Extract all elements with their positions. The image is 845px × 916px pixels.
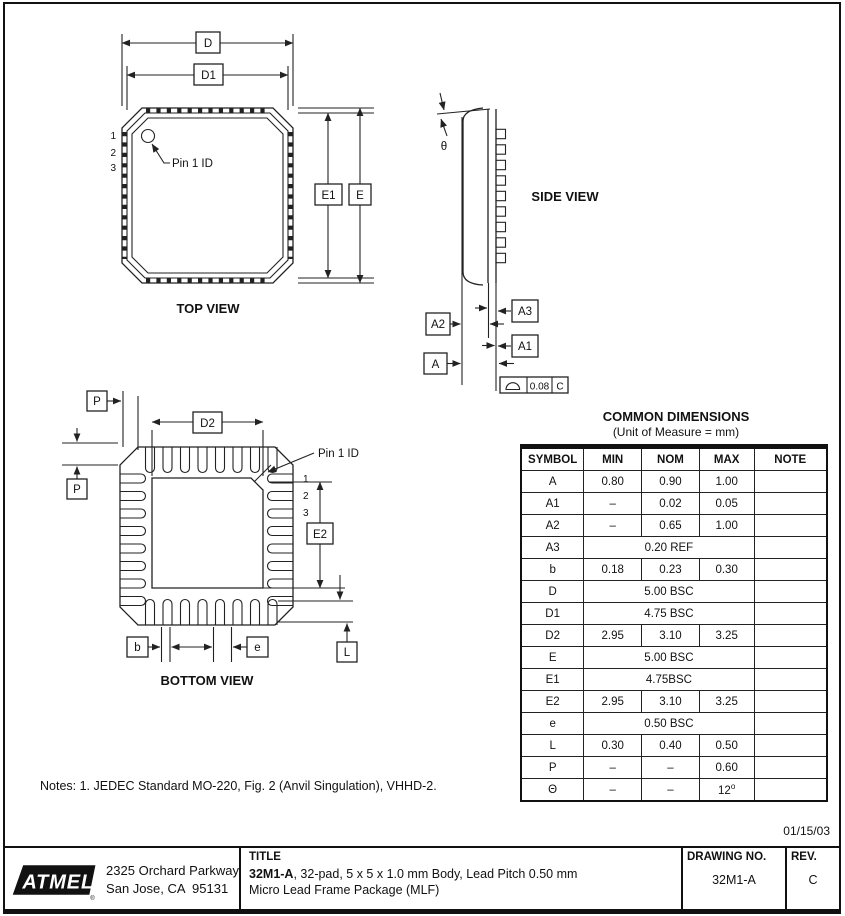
cell-min: 0.30 <box>584 735 642 757</box>
table-header-row: SYMBOL MIN NOM MAX NOTE <box>521 447 827 471</box>
drawing-title: 32M1-A, 32-pad, 5 x 5 x 1.0 mm Body, Lea… <box>249 866 673 899</box>
title-cell: TITLE 32M1-A, 32-pad, 5 x 5 x 1.0 mm Bod… <box>241 848 683 911</box>
dim-E1-label: E1 <box>321 190 335 202</box>
cell-note <box>754 581 827 603</box>
common-dimensions: COMMON DIMENSIONS (Unit of Measure = mm)… <box>520 409 832 802</box>
drawing-title-rest: , 32-pad, 5 x 5 x 1.0 mm Body, Lead Pitc… <box>293 867 577 881</box>
pin-number-2-bottom: 2 <box>303 491 309 502</box>
cell-max: 0.50 <box>699 735 754 757</box>
dim-P-top: P <box>87 391 138 450</box>
dim-D-label: D <box>204 38 212 50</box>
pin-number-2: 2 <box>110 148 116 159</box>
cell-min: – <box>584 493 642 515</box>
drawing-number-label: DRAWING NO. <box>683 848 785 863</box>
table-title: COMMON DIMENSIONS <box>520 409 832 424</box>
cell-note <box>754 515 827 537</box>
cell-symbol: e <box>521 713 584 735</box>
cell-symbol: A3 <box>521 537 584 559</box>
cell-symbol: D1 <box>521 603 584 625</box>
table-row: A1–0.020.05 <box>521 493 827 515</box>
dim-A: A <box>424 353 514 374</box>
dim-E-label: E <box>356 190 364 202</box>
cell-note <box>754 471 827 493</box>
cell-min: 0.18 <box>584 559 642 581</box>
cell-note <box>754 779 827 802</box>
pin-number-1: 1 <box>110 131 116 142</box>
cell-max: 3.25 <box>699 691 754 713</box>
cell-note <box>754 757 827 779</box>
drawing-sheet: D D1 E1 E <box>0 0 845 916</box>
top-view-caption: TOP VIEW <box>176 301 240 316</box>
cell-min: – <box>584 779 642 802</box>
pin-number-3: 3 <box>110 163 116 174</box>
dimensions-table: SYMBOL MIN NOM MAX NOTE A0.800.901.00 A1… <box>520 444 828 802</box>
cell-nom: 0.02 <box>642 493 700 515</box>
table-row: A0.800.901.00 <box>521 471 827 493</box>
top-view: D D1 E1 E <box>110 32 374 316</box>
cell-nom: – <box>642 757 700 779</box>
dim-A-label: A <box>432 359 440 371</box>
dim-e-label: e <box>254 642 260 654</box>
table-row: E14.75BSC <box>521 669 827 691</box>
notes-text: Notes: 1. JEDEC Standard MO-220, Fig. 2 … <box>40 779 437 793</box>
cell-symbol: A1 <box>521 493 584 515</box>
table-row: E22.953.103.25 <box>521 691 827 713</box>
cell-span-value: 4.75 BSC <box>584 603 754 625</box>
cell-symbol: A <box>521 471 584 493</box>
revision-cell: REV. C <box>787 848 839 911</box>
address-line1: 2325 Orchard Parkway <box>106 863 239 878</box>
cell-note <box>754 493 827 515</box>
cell-nom: – <box>642 779 700 802</box>
bottom-view: Pin 1 ID 1 2 3 D2 P <box>62 391 359 688</box>
dim-b-e: b e <box>127 627 268 662</box>
drawing-number-cell: DRAWING NO. 32M1-A <box>683 848 787 911</box>
dim-E-E1: E1 E <box>298 108 374 283</box>
cell-nom: 0.90 <box>642 471 700 493</box>
cell-note <box>754 669 827 691</box>
cell-note <box>754 603 827 625</box>
flatness-callout: 0.08 C <box>500 377 568 393</box>
cell-nom: 0.40 <box>642 735 700 757</box>
table-row: e0.50 BSC <box>521 713 827 735</box>
dim-A3: A3 <box>475 300 538 322</box>
drawing-title-line2: Micro Lead Frame Package (MLF) <box>249 883 439 897</box>
dim-D1: D1 <box>127 64 288 110</box>
col-min: MIN <box>584 447 642 471</box>
cell-symbol: D <box>521 581 584 603</box>
atmel-logo-text: ATMEL <box>21 871 94 893</box>
cell-max: 0.60 <box>699 757 754 779</box>
pin1-id-label: Pin 1 ID <box>172 158 213 170</box>
registered-mark-icon: ® <box>90 895 95 902</box>
table-row: A2–0.651.00 <box>521 515 827 537</box>
cell-min: – <box>584 515 642 537</box>
col-symbol: SYMBOL <box>521 447 584 471</box>
address-line2: San Jose, CA 95131 <box>106 881 228 896</box>
flatness-datum: C <box>556 382 563 393</box>
cell-nom: 3.10 <box>642 691 700 713</box>
cell-span-value: 0.50 BSC <box>584 713 754 735</box>
pin1-id-mark <box>142 130 155 143</box>
cell-span-value: 5.00 BSC <box>584 647 754 669</box>
cell-nom: 0.23 <box>642 559 700 581</box>
col-note: NOTE <box>754 447 827 471</box>
table-row: D22.953.103.25 <box>521 625 827 647</box>
dim-D1-label: D1 <box>201 70 216 82</box>
cell-symbol: E <box>521 647 584 669</box>
dim-A2: A2 <box>426 313 504 335</box>
col-max: MAX <box>699 447 754 471</box>
pin1-id-label-bottom: Pin 1 ID <box>318 448 359 460</box>
revision-label: REV. <box>787 848 839 863</box>
company-address: 2325 Orchard ParkwaySan Jose, CA 95131 <box>106 862 239 897</box>
drawing-title-part-number: 32M1-A <box>249 867 293 881</box>
cell-symbol: A2 <box>521 515 584 537</box>
cell-note <box>754 559 827 581</box>
table-row: E5.00 BSC <box>521 647 827 669</box>
col-nom: NOM <box>642 447 700 471</box>
title-block: ATMEL ® 2325 Orchard ParkwaySan Jose, CA… <box>5 846 839 911</box>
title-label: TITLE <box>249 851 673 863</box>
cell-span-value: 0.20 REF <box>584 537 754 559</box>
cell-nom: 0.65 <box>642 515 700 537</box>
dim-A2-label: A2 <box>431 319 445 331</box>
dim-A1: A1 <box>482 335 538 357</box>
cell-max: 0.05 <box>699 493 754 515</box>
revision-value: C <box>787 873 839 887</box>
dim-A3-label: A3 <box>518 306 532 318</box>
cell-symbol: L <box>521 735 584 757</box>
cell-note <box>754 735 827 757</box>
cell-note <box>754 691 827 713</box>
cell-max: 1.00 <box>699 471 754 493</box>
dim-P-top-label: P <box>93 396 101 408</box>
table-row: b0.180.230.30 <box>521 559 827 581</box>
cell-min: 0.80 <box>584 471 642 493</box>
cell-symbol: Θ <box>521 779 584 802</box>
cell-nom: 3.10 <box>642 625 700 647</box>
cell-min: 2.95 <box>584 691 642 713</box>
dim-b-label: b <box>134 642 140 654</box>
cell-span-value: 5.00 BSC <box>584 581 754 603</box>
cell-min: 2.95 <box>584 625 642 647</box>
pin-number-1-bottom: 1 <box>303 474 309 485</box>
dim-E2-label: E2 <box>313 529 327 541</box>
dim-A1-label: A1 <box>518 341 532 353</box>
cell-symbol: D2 <box>521 625 584 647</box>
table-row: P––0.60 <box>521 757 827 779</box>
cell-note <box>754 625 827 647</box>
cell-span-value: 4.75BSC <box>584 669 754 691</box>
table-row: L0.300.400.50 <box>521 735 827 757</box>
cell-symbol: b <box>521 559 584 581</box>
logo-cell: ATMEL ® 2325 Orchard ParkwaySan Jose, CA… <box>5 848 241 911</box>
cell-symbol: E1 <box>521 669 584 691</box>
bottom-view-caption: BOTTOM VIEW <box>161 673 255 688</box>
cell-symbol: E2 <box>521 691 584 713</box>
table-row: A30.20 REF <box>521 537 827 559</box>
dim-P-left: P <box>62 428 118 499</box>
table-row: D14.75 BSC <box>521 603 827 625</box>
cell-symbol: P <box>521 757 584 779</box>
cell-max: 3.25 <box>699 625 754 647</box>
atmel-logo: ATMEL ® <box>11 856 98 904</box>
dim-D2-label: D2 <box>200 418 215 430</box>
cell-min: – <box>584 757 642 779</box>
revision-date: 01/15/03 <box>700 824 830 838</box>
dim-theta-label: θ <box>441 141 447 153</box>
flatness-tolerance: 0.08 <box>530 382 550 393</box>
table-row: Θ––12o <box>521 779 827 802</box>
cell-note <box>754 647 827 669</box>
cell-max: 0.30 <box>699 559 754 581</box>
dim-L-label: L <box>344 647 351 659</box>
table-row: D5.00 BSC <box>521 581 827 603</box>
cell-note <box>754 713 827 735</box>
pin-number-3-bottom: 3 <box>303 508 309 519</box>
cell-max: 12o <box>699 779 754 802</box>
exposed-pad <box>152 478 263 588</box>
cell-max: 1.00 <box>699 515 754 537</box>
dim-P-left-label: P <box>73 484 81 496</box>
cell-note <box>754 537 827 559</box>
side-view-caption: SIDE VIEW <box>531 189 599 204</box>
side-view: θ SIDE VIEW A3 A2 <box>424 93 599 393</box>
table-subtitle: (Unit of Measure = mm) <box>520 425 832 439</box>
drawing-number-value: 32M1-A <box>683 873 785 887</box>
